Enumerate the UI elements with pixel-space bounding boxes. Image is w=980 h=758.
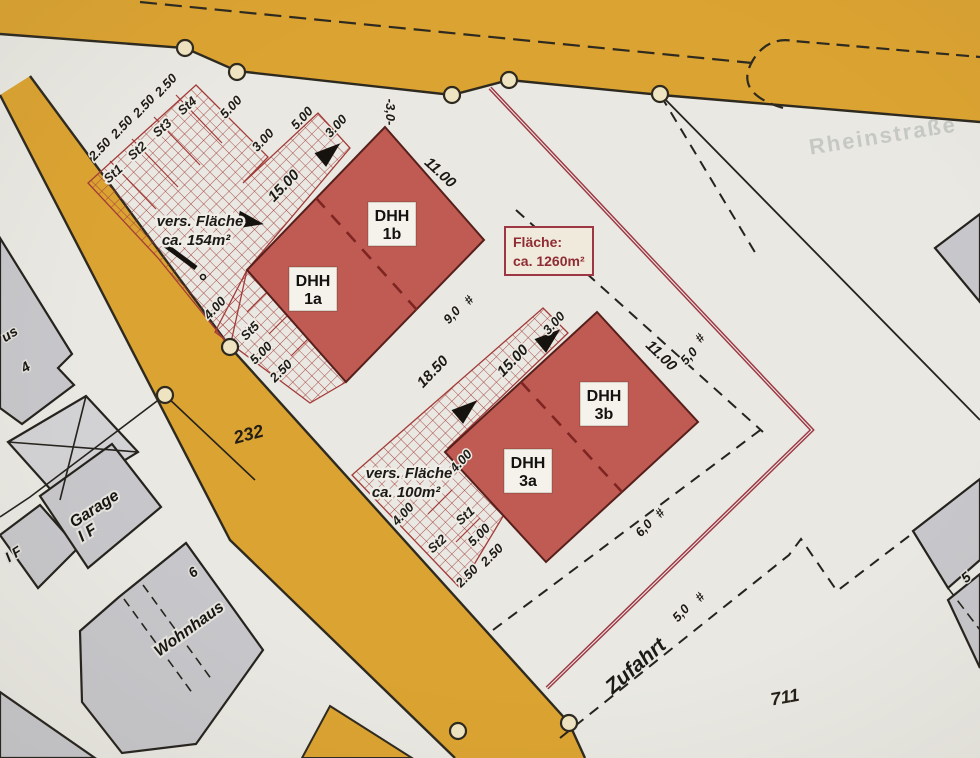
dhh-1b-line2: 1b	[383, 226, 402, 243]
dashed-parcel-ne	[661, 96, 756, 254]
building-gray-topright	[935, 214, 980, 302]
boundary-point	[229, 64, 245, 80]
map-label: 6,0	[632, 516, 656, 540]
boundary-point	[652, 86, 668, 102]
dhh-3a-label: DHH 3a	[504, 449, 552, 493]
site-plan-scan: DHH 1a DHH 1b DHH 3a DHH 3b Fläche: ca. …	[0, 0, 980, 758]
plot-area-line1: Fläche:	[513, 234, 562, 250]
dhh-1a-line2: 1a	[304, 291, 322, 308]
dhh-3a-line2: 3a	[519, 473, 537, 490]
boundary-point	[450, 723, 466, 739]
plot-area-line2: ca. 1260m²	[513, 253, 585, 269]
map-label: Zufahrt	[600, 633, 671, 699]
map-label: 2.50	[107, 112, 136, 142]
map-label: vers. Fläche	[157, 213, 244, 230]
plot-area-box: Fläche: ca. 1260m²	[505, 227, 593, 275]
dhh-1b-line1: DHH	[375, 208, 410, 225]
site-plan-drawing: DHH 1a DHH 1b DHH 3a DHH 3b Fläche: ca. …	[0, 0, 980, 758]
dhh-3b-line2: 3b	[595, 406, 614, 423]
map-label: 9,0	[440, 303, 464, 327]
map-label: #	[692, 589, 708, 605]
dhh-1b-label: DHH 1b	[368, 202, 416, 246]
dhh-1a-label: DHH 1a	[289, 267, 337, 311]
neighbor-right	[660, 94, 980, 668]
map-label: ca. 154m²	[162, 232, 231, 249]
dhh-3b-label: DHH 3b	[580, 382, 628, 426]
map-label: 711	[769, 685, 801, 710]
boundary-point	[501, 72, 517, 88]
dhh-3a-line1: DHH	[511, 455, 546, 472]
map-label: 5,0	[677, 344, 701, 368]
building-gray-right-upper	[913, 479, 980, 588]
boundary-point	[157, 387, 173, 403]
boundary-point	[222, 339, 238, 355]
map-label: vers. Fläche	[366, 465, 453, 482]
map-label: 18.50	[414, 352, 453, 391]
road-bottom-wedge	[302, 706, 412, 758]
map-label: ca. 100m²	[372, 484, 441, 501]
boundary-point	[561, 715, 577, 731]
building-corner-bottom-left	[0, 692, 95, 758]
dhh-3b-line1: DHH	[587, 388, 622, 405]
map-label: 5,0	[669, 601, 693, 625]
map-label: #	[692, 330, 708, 346]
map-label: 2.50	[129, 91, 158, 121]
dhh-1a-line1: DHH	[296, 273, 331, 290]
map-label: -3,0-	[383, 99, 398, 126]
building-gray-right-lower	[948, 574, 980, 668]
map-label: #	[652, 505, 668, 521]
map-label: #	[461, 292, 477, 308]
dashed-zufahrt-boundary	[560, 533, 913, 738]
boundary-point	[177, 40, 193, 56]
boundary-point	[444, 87, 460, 103]
map-label: Rheinstraße	[807, 112, 958, 160]
